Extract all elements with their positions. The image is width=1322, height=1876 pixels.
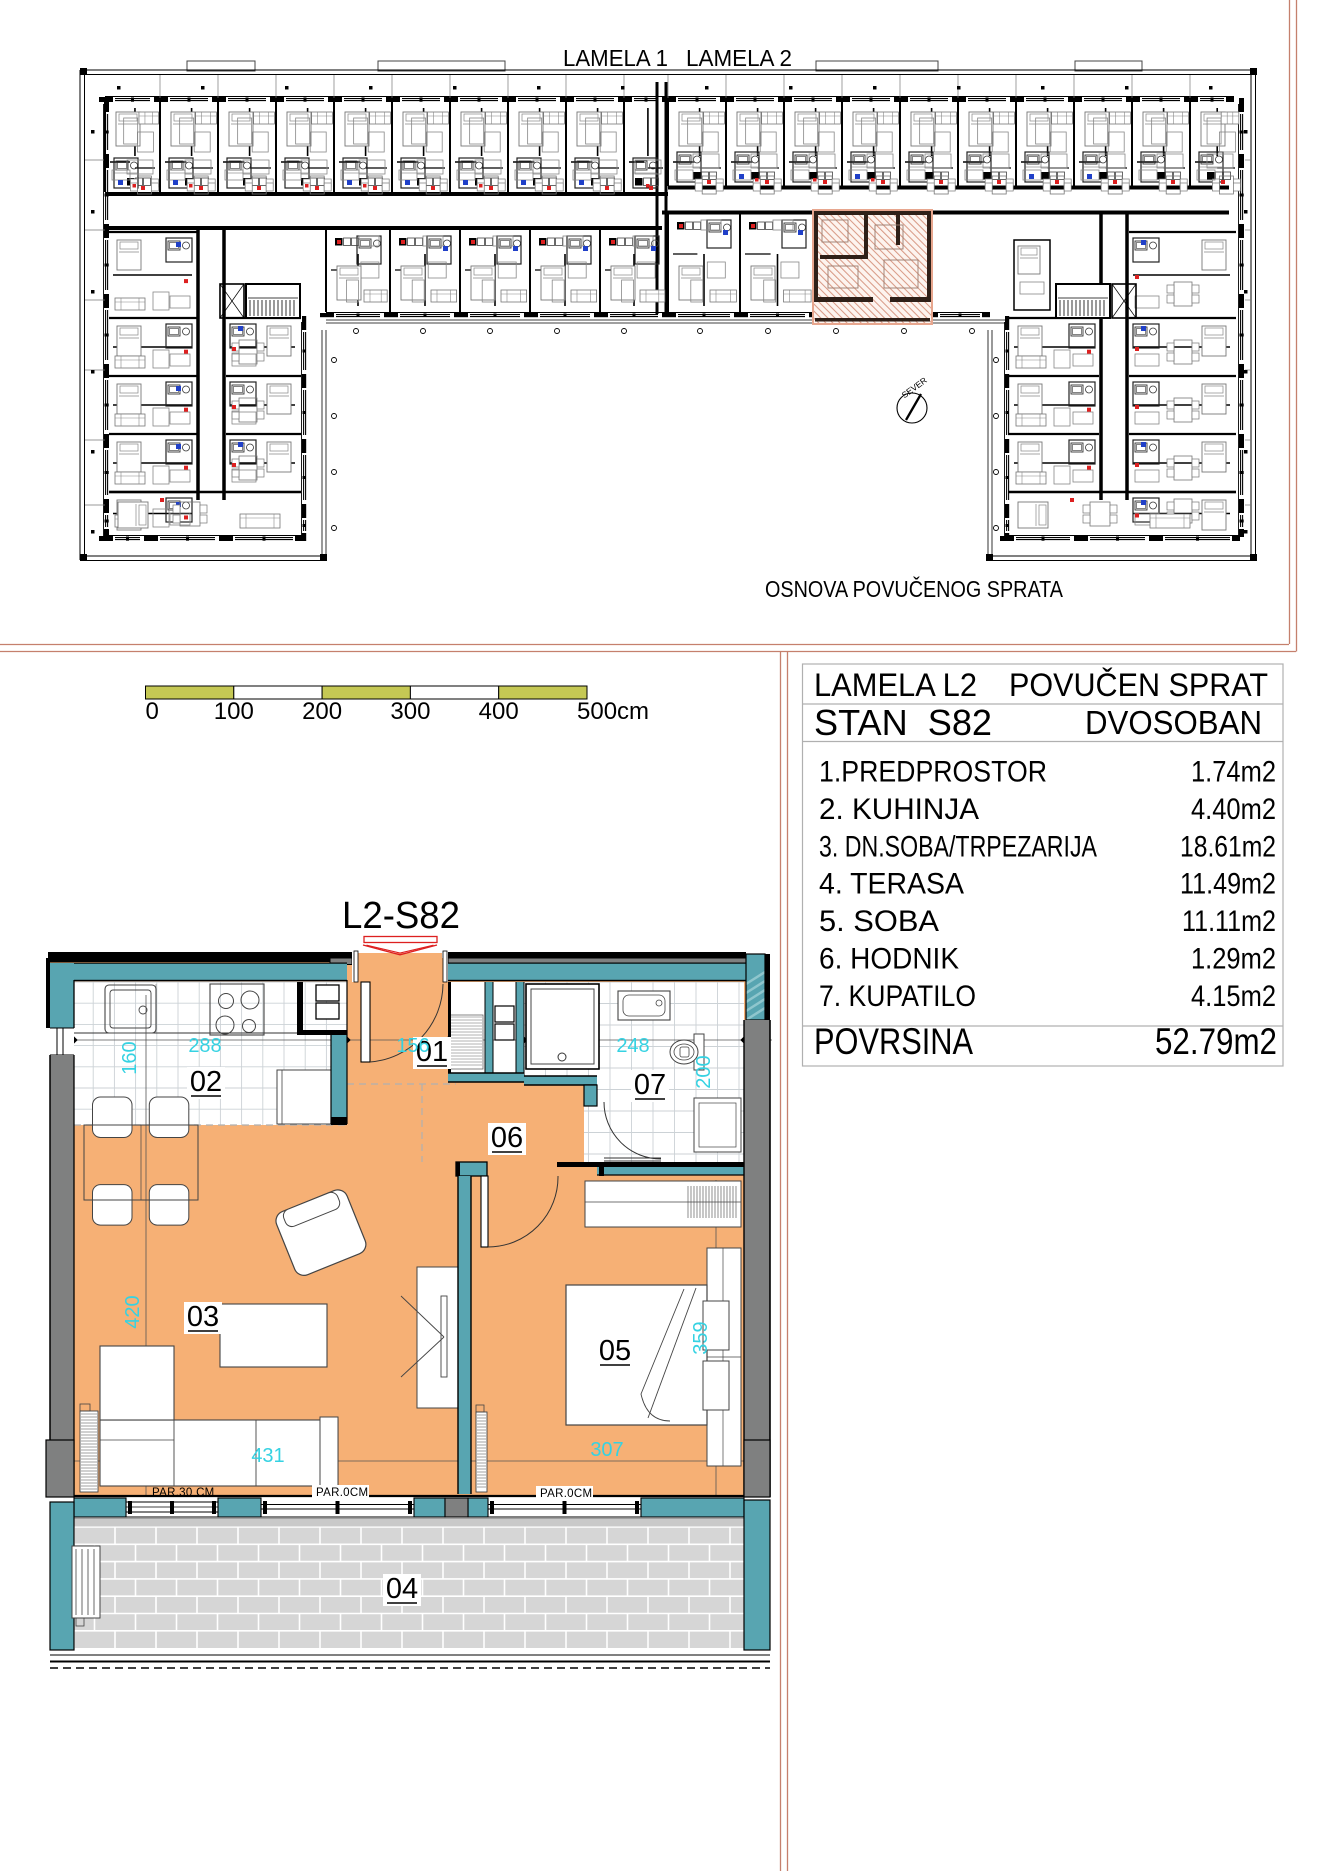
- svg-text:200: 200: [693, 1055, 715, 1088]
- svg-text:500cm: 500cm: [577, 698, 649, 725]
- svg-text:06: 06: [491, 1122, 523, 1154]
- svg-text:1.29m2: 1.29m2: [1191, 943, 1276, 976]
- svg-text:POVUČEN SPRAT: POVUČEN SPRAT: [1009, 667, 1268, 703]
- svg-text:PAR.0CM: PAR.0CM: [540, 1488, 592, 1500]
- svg-text:2. KUHINJA: 2. KUHINJA: [819, 793, 979, 826]
- svg-text:DVOSOBAN: DVOSOBAN: [1085, 704, 1262, 741]
- svg-text:07: 07: [634, 1069, 666, 1101]
- svg-text:POVRSINA: POVRSINA: [814, 1021, 973, 1062]
- svg-text:1.PREDPROSTOR: 1.PREDPROSTOR: [819, 756, 1047, 789]
- svg-text:420: 420: [122, 1295, 144, 1328]
- svg-text:04: 04: [386, 1573, 418, 1605]
- svg-text:52.79m2: 52.79m2: [1155, 1021, 1277, 1062]
- svg-text:1.74m2: 1.74m2: [1191, 756, 1276, 789]
- svg-text:400: 400: [479, 698, 519, 725]
- svg-text:5. SOBA: 5. SOBA: [819, 905, 939, 938]
- svg-text:6. HODNIK: 6. HODNIK: [819, 943, 959, 976]
- svg-text:307: 307: [590, 1439, 623, 1461]
- svg-text:LAMELA 2: LAMELA 2: [686, 45, 792, 71]
- svg-text:4.15m2: 4.15m2: [1191, 980, 1276, 1013]
- svg-text:LAMELA L2: LAMELA L2: [814, 667, 977, 703]
- svg-text:L2-S82: L2-S82: [342, 895, 460, 937]
- svg-text:OSNOVA POVUČENOG SPRATA: OSNOVA POVUČENOG SPRATA: [765, 575, 1063, 602]
- svg-text:03: 03: [187, 1301, 219, 1333]
- svg-text:18.61m2: 18.61m2: [1180, 830, 1276, 863]
- svg-text:4.40m2: 4.40m2: [1191, 793, 1276, 826]
- svg-text:431: 431: [251, 1445, 284, 1467]
- svg-text:4. TERASA: 4. TERASA: [819, 868, 964, 901]
- svg-text:PAR.30 CM: PAR.30 CM: [152, 1487, 215, 1499]
- svg-text:05: 05: [599, 1335, 631, 1367]
- svg-text:156: 156: [396, 1035, 429, 1057]
- svg-text:288: 288: [188, 1035, 221, 1057]
- svg-text:0: 0: [146, 698, 159, 725]
- svg-text:100: 100: [214, 698, 254, 725]
- svg-text:LAMELA 1: LAMELA 1: [563, 45, 668, 71]
- svg-text:7. KUPATILO: 7. KUPATILO: [819, 980, 976, 1013]
- svg-text:SEVER: SEVER: [900, 375, 929, 400]
- svg-text:STAN S82: STAN S82: [814, 702, 992, 743]
- svg-text:200: 200: [302, 698, 342, 725]
- svg-text:PAR.0CM: PAR.0CM: [316, 1487, 368, 1499]
- svg-text:248: 248: [616, 1035, 649, 1057]
- svg-text:3. DN.SOBA/TRPEZARIJA: 3. DN.SOBA/TRPEZARIJA: [819, 830, 1097, 863]
- svg-text:11.49m2: 11.49m2: [1180, 868, 1276, 901]
- svg-text:300: 300: [390, 698, 430, 725]
- svg-text:02: 02: [190, 1066, 222, 1098]
- svg-text:359: 359: [690, 1321, 712, 1354]
- svg-text:11.11m2: 11.11m2: [1182, 905, 1276, 938]
- svg-text:160: 160: [119, 1041, 141, 1074]
